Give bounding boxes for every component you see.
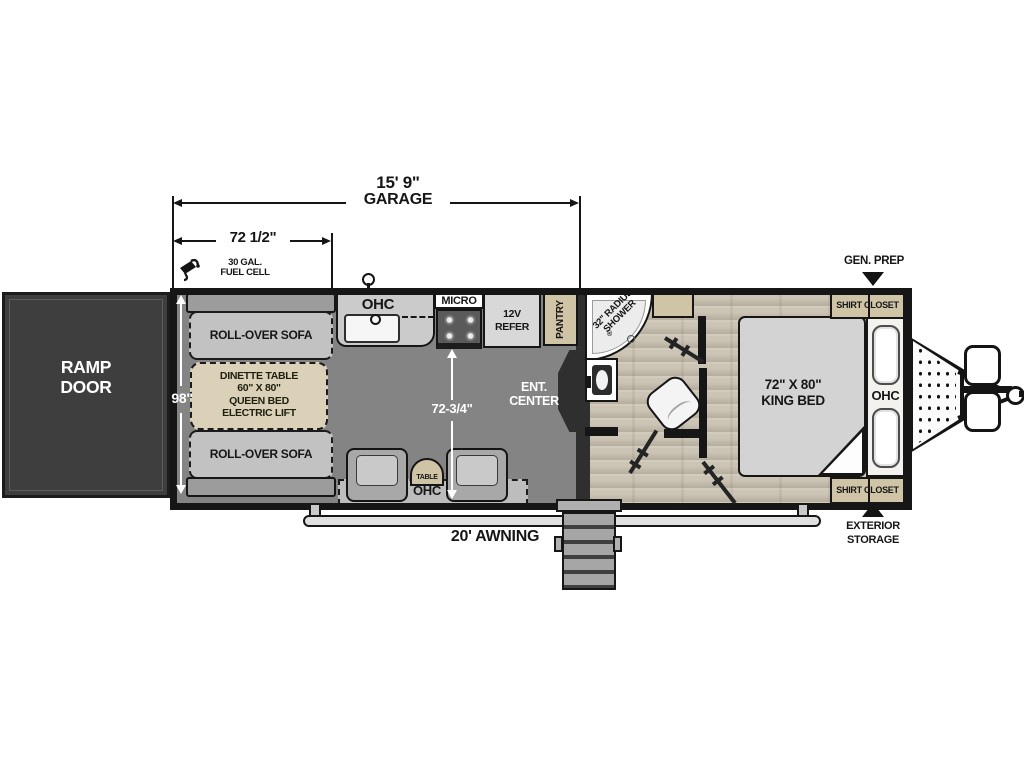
refer-line1: 12V: [485, 308, 539, 321]
wall-bath-c: [699, 368, 707, 458]
garage-dimension: 15' 9" GARAGE: [346, 174, 450, 209]
dinette-line2: 60" X 80": [192, 382, 326, 394]
bed-ohc-label: OHC: [866, 389, 905, 403]
living-dim-arrow-up-icon: [447, 349, 457, 358]
exterior-storage-arrow-icon: [862, 503, 884, 517]
shirt-closet-top-label: SHIRT CLOSET: [832, 301, 903, 311]
ent-line2: CENTER: [502, 395, 566, 409]
propane-tank-top: [964, 345, 1001, 386]
garage-length-text: 15' 9": [346, 174, 450, 192]
living-dim-line-top: [451, 352, 453, 400]
fuel-line2: FUEL CELL: [202, 268, 288, 278]
steps-rail-left: [554, 536, 563, 552]
pillow-top: [872, 325, 900, 385]
hitch-plate-dots: [916, 345, 956, 445]
front-dimension: 72 1/2": [216, 230, 290, 246]
storage-line2: STORAGE: [834, 534, 912, 548]
garage-word-text: GARAGE: [346, 192, 450, 209]
ramp-door-label: RAMP DOOR: [5, 357, 167, 397]
gen-prep-label: GEN. PREP: [832, 255, 916, 268]
ramp-line2: DOOR: [5, 377, 167, 397]
wall-bath-d: [664, 429, 707, 438]
floorplan-canvas: 15' 9" GARAGE 72 1/2" 30 GAL. FUEL CELL …: [0, 0, 1024, 768]
ramp-door: RAMP DOOR: [2, 292, 170, 498]
counter-ohc-dashline: [402, 316, 434, 318]
ent-line1: ENT.: [502, 381, 566, 395]
living-dim-line-bottom: [451, 421, 453, 493]
dinette-line1: DINETTE TABLE: [192, 370, 326, 382]
roll-over-sofa-top: ROLL-OVER SOFA: [189, 311, 333, 360]
width-dim-line-top: [180, 298, 182, 386]
ramp-line1: RAMP: [5, 357, 167, 377]
dinette-line4: ELECTRIC LIFT: [192, 407, 326, 419]
pantry: PANTRY: [543, 293, 578, 346]
chair-cushion: [456, 455, 498, 486]
wall-bath-b: [585, 427, 618, 436]
entry-steps: [562, 512, 616, 590]
shirt-closet-bottom: SHIRT CLOSET: [830, 477, 905, 504]
front-dim-arrow-left-icon: [173, 237, 182, 245]
front-dim-arrow-right-icon: [322, 237, 331, 245]
dinette-queen-bed: DINETTE TABLE 60" X 80" QUEEN BED ELECTR…: [190, 362, 328, 430]
bed-line2: KING BED: [740, 393, 846, 409]
bath-cabinet: [652, 293, 694, 318]
width-dim-line-bottom: [180, 413, 182, 487]
living-ohc-label: OHC: [398, 484, 456, 498]
sofa-top-label: ROLL-OVER SOFA: [191, 329, 331, 342]
pantry-label: PANTRY: [555, 300, 566, 339]
gen-prep-arrow-icon: [862, 272, 884, 286]
vanity-basin: [596, 370, 608, 390]
fuel-pump-icon: [176, 256, 202, 282]
dinette-line3: QUEEN BED: [192, 395, 326, 407]
steps-rail-right: [613, 536, 622, 552]
sofa-bottom-label: ROLL-OVER SOFA: [191, 448, 331, 461]
shower-reg-mark: ®: [607, 331, 612, 338]
storage-line1: EXTERIOR: [834, 520, 912, 534]
refer-line2: REFER: [485, 321, 539, 334]
entry-steps-platform: [556, 499, 622, 512]
bed-line1: 72" X 80": [740, 377, 846, 393]
faucet-icon: [370, 314, 381, 325]
chair-cushion: [356, 455, 398, 486]
bath-vanity: [585, 358, 618, 402]
ent-center-label: ENT. CENTER: [502, 381, 566, 409]
vanity-sink: [592, 365, 612, 395]
stove-range: [436, 309, 482, 349]
lift-table: TABLE: [410, 458, 444, 486]
awning-label: 20' AWNING: [428, 528, 562, 546]
width-dim-arrow-down-icon: [176, 485, 186, 494]
dinette-label: DINETTE TABLE 60" X 80" QUEEN BED ELECTR…: [192, 370, 326, 420]
kitchen-sink: [344, 314, 400, 343]
exterior-storage-label: EXTERIOR STORAGE: [834, 520, 912, 548]
micro-label: MICRO: [436, 295, 482, 307]
width-dim-arrow-up-icon: [176, 295, 186, 304]
sofa-top-backrest: [186, 293, 336, 313]
shirt-closet-bottom-label: SHIRT CLOSET: [832, 486, 903, 496]
refrigerator: 12V REFER: [483, 293, 541, 348]
front-dim-endline: [331, 233, 333, 288]
width-dim-label: 98": [164, 391, 200, 406]
refer-label: 12V REFER: [485, 308, 539, 334]
fuel-cell-label: 30 GAL. FUEL CELL: [202, 258, 288, 279]
garage-dim-arrow-left-icon: [173, 199, 182, 207]
living-dim-label: 72-3/4": [416, 402, 488, 416]
roll-over-sofa-bottom: ROLL-OVER SOFA: [189, 430, 333, 479]
hitch-coupler-tip: [1019, 391, 1024, 397]
shirt-closet-top: SHIRT CLOSET: [830, 292, 905, 319]
garage-dim-endline-right: [579, 196, 581, 288]
king-bed-label: 72" X 80" KING BED: [740, 377, 846, 409]
table-label: TABLE: [412, 474, 442, 482]
shower-drain-icon: [627, 335, 635, 343]
kitchen-ohc-label: OHC: [346, 297, 410, 314]
wall-top: [170, 288, 912, 295]
pillow-bottom: [872, 408, 900, 468]
vanity-faucet-icon: [586, 376, 591, 388]
wall-right: [905, 288, 912, 510]
propane-tank-bottom: [964, 391, 1001, 432]
sofa-bottom-backrest: [186, 477, 336, 497]
garage-dim-arrow-right-icon: [570, 199, 579, 207]
